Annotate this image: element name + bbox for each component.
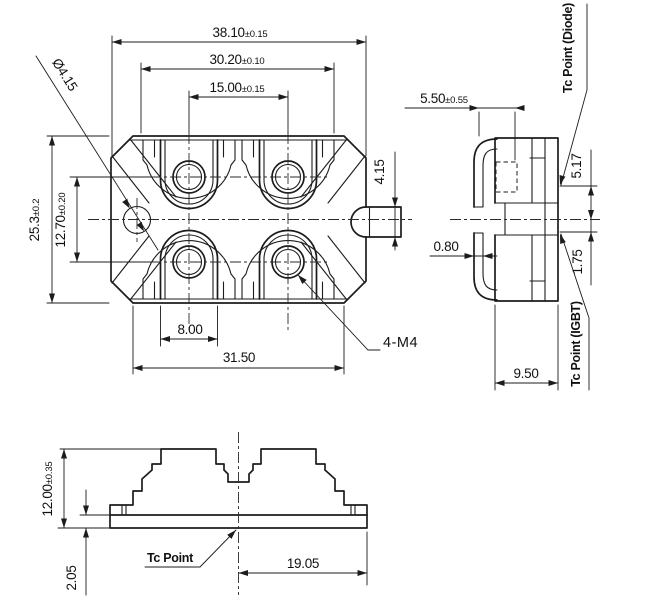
dim-tc-diode-offset: 5.17 <box>560 150 597 220</box>
lower-lead-inner <box>474 233 497 290</box>
dim-pad-width: 8.00 <box>161 306 218 346</box>
leader-line <box>298 275 380 350</box>
dim-text-pad-width: 8.00 <box>177 322 202 337</box>
dim-base-thickness: 2.05 <box>64 490 110 595</box>
dim-text-tc-diode-offset: 5.17 <box>569 153 584 178</box>
front-view: 12.00±0.35 2.05 Tc Point 19.05 <box>40 432 367 595</box>
side-tab <box>366 207 401 237</box>
engineering-drawing: 38.10±0.15 30.20±0.10 15.00±0.15 Ø4.15 2… <box>0 0 647 608</box>
dim-text-tab-width: 4.15 <box>372 159 387 184</box>
dim-lines <box>189 91 288 133</box>
dim-text-half-width: 19.05 <box>287 556 319 571</box>
dim-text-hole-pitch-x: 15.00±0.15 <box>209 80 264 95</box>
tc-diode-text: Tc Point (Diode) <box>561 3 575 93</box>
dim-text-body-width: 31.50 <box>223 350 255 365</box>
drawing-canvas: 38.10±0.15 30.20±0.10 15.00±0.15 Ø4.15 2… <box>0 0 647 608</box>
dim-text-overall-height: 25.3±0.2 <box>27 199 42 242</box>
dim-text-tc-igbt-offset: 1.75 <box>570 249 585 274</box>
dim-text-body-depth: 9.50 <box>513 366 538 381</box>
dim-tc-igbt-offset: 1.75 <box>560 220 597 286</box>
dim-text-height: 12.00±0.35 <box>40 461 55 516</box>
hidden-die-outline <box>496 162 517 192</box>
dim-tab-width: 4.15 <box>372 152 398 250</box>
side-view: 5.50±0.55 0.80 5.17 1.75 9.50 Tc Point (… <box>405 3 600 390</box>
dim-body-depth: 9.50 <box>495 305 558 390</box>
dim-text-hole-dia: Ø4.15 <box>49 56 80 94</box>
dim-lines <box>141 63 334 133</box>
tc-point-text: Tc Point <box>147 551 194 565</box>
dim-text-base-thickness: 2.05 <box>64 565 79 590</box>
arrowhead <box>560 234 566 244</box>
dim-lines <box>405 108 520 160</box>
dim-hole-pitch-x: 15.00±0.15 <box>189 80 288 133</box>
upper-lead-inner <box>474 149 497 207</box>
thread-note-text: 4-M4 <box>383 335 418 351</box>
dim-lead-offset: 5.50±0.55 <box>405 91 525 160</box>
dim-text-overall-width: 38.10±0.15 <box>212 25 267 40</box>
dim-text-lead-thickness: 0.80 <box>433 239 458 254</box>
dim-text-lead-offset: 5.50±0.55 <box>420 91 468 106</box>
top-view: 38.10±0.15 30.20±0.10 15.00±0.15 Ø4.15 2… <box>27 25 418 374</box>
dim-text-pad-span: 30.20±0.10 <box>209 52 264 67</box>
arrowheads <box>588 232 594 242</box>
dim-text-hole-pitch-y: 12.70±0.20 <box>53 192 68 247</box>
label-tc-point: Tc Point <box>145 530 236 567</box>
arrowhead <box>560 175 566 185</box>
dim-lead-thickness: 0.80 <box>430 239 497 259</box>
dim-half-width: 19.05 <box>239 532 368 585</box>
tc-igbt-text: Tc Point (IGBT) <box>569 301 583 387</box>
arrowheads <box>83 506 89 538</box>
